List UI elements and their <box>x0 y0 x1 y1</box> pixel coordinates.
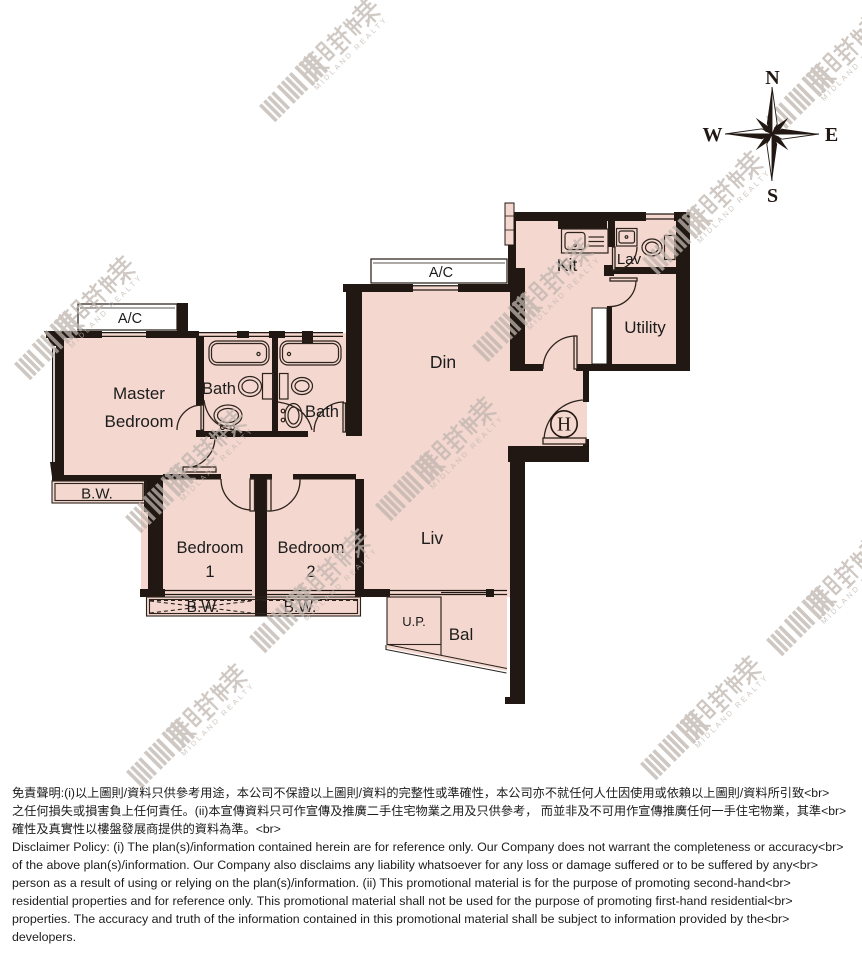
svg-text:residential properties and for: residential properties and for reference… <box>12 894 793 908</box>
svg-text:B.W.: B.W. <box>81 486 113 503</box>
svg-text:Utility: Utility <box>624 318 666 337</box>
svg-text:Master: Master <box>113 384 165 403</box>
svg-text:B.W.: B.W. <box>187 599 220 616</box>
svg-text:確性及真實性以樓盤發展商提供的資料為準。<br>: 確性及真實性以樓盤發展商提供的資料為準。<br> <box>12 821 281 836</box>
svg-text:Disclaimer Policy: (i) The pla: Disclaimer Policy: (i) The plan(s)/infor… <box>12 840 843 854</box>
svg-text:person as a result of using or: person as a result of using or relying o… <box>12 876 791 890</box>
svg-text:properties. The accuracy and t: properties. The accuracy and truth of th… <box>12 912 789 926</box>
svg-text:H: H <box>557 415 571 436</box>
svg-text:Bal: Bal <box>449 625 474 644</box>
svg-text:Lav: Lav <box>617 251 642 268</box>
svg-text:E: E <box>825 124 838 146</box>
svg-text:of the above plan(s)/informati: of the above plan(s)/information. Our Co… <box>12 858 818 872</box>
svg-text:N: N <box>765 67 780 89</box>
svg-text:Bath: Bath <box>305 403 339 421</box>
svg-text:之任何損失或損害負上任何責任。(ii)本宣傳資料只可作宣傳及: 之任何損失或損害負上任何責任。(ii)本宣傳資料只可作宣傳及推廣二手住宅物業之用… <box>12 803 846 818</box>
svg-text:U.P.: U.P. <box>402 614 426 629</box>
svg-text:Bath: Bath <box>202 380 236 398</box>
svg-text:Liv: Liv <box>421 528 444 548</box>
svg-text:A/C: A/C <box>118 311 142 327</box>
svg-text:Bedroom: Bedroom <box>177 539 244 557</box>
svg-text:W: W <box>703 124 723 146</box>
svg-text:S: S <box>767 185 778 207</box>
svg-text:A/C: A/C <box>429 265 453 281</box>
svg-text:免責聲明:(i)以上圖則/資料只供參考用途，本公司不保證以上: 免責聲明:(i)以上圖則/資料只供參考用途，本公司不保證以上圖則/資料的完整性或… <box>12 785 829 800</box>
svg-text:Din: Din <box>430 352 456 372</box>
svg-text:Bedroom: Bedroom <box>105 412 174 431</box>
svg-text:1: 1 <box>205 563 214 581</box>
svg-text:developers.: developers. <box>12 930 76 944</box>
